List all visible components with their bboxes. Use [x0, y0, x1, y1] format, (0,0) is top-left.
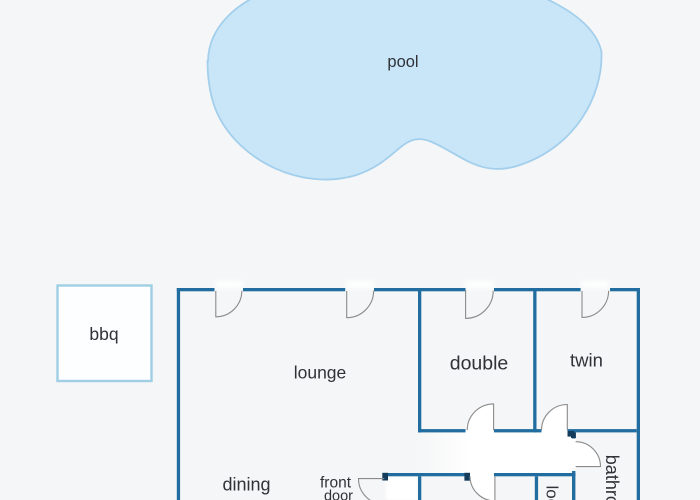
svg-text:lounge: lounge — [294, 363, 347, 383]
svg-text:bbq: bbq — [89, 324, 118, 344]
svg-text:bathroom: bathroom — [602, 455, 622, 500]
svg-text:dining: dining — [222, 475, 270, 495]
svg-text:twin: twin — [570, 350, 603, 371]
svg-text:double: double — [450, 353, 509, 375]
svg-text:pool: pool — [387, 53, 418, 71]
svg-text:door: door — [324, 488, 353, 500]
svg-text:loo: loo — [543, 486, 562, 500]
